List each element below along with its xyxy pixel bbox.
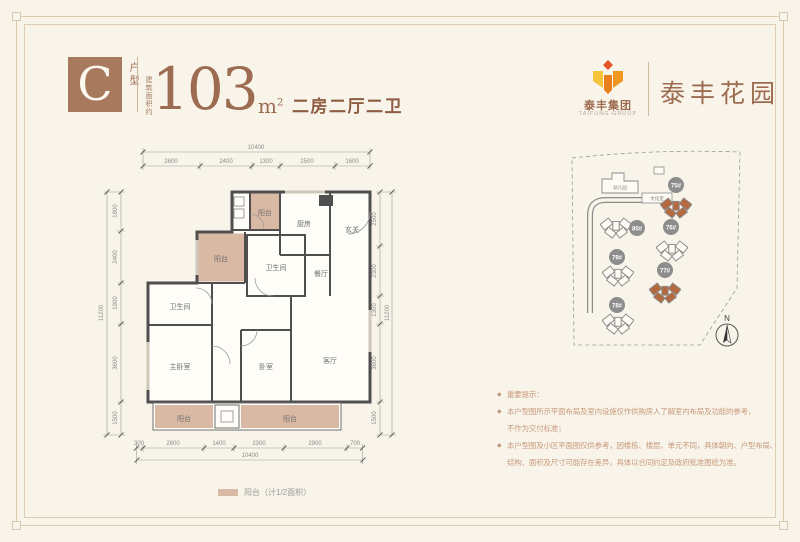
dim: 3600: [113, 356, 119, 370]
dim: 1600: [345, 159, 359, 165]
building-id: 80#: [632, 227, 643, 233]
dim: 1800: [113, 204, 119, 218]
disclaimer-text: 本户型图所示平面布局及室内设施仅作供购房人了解室内布局及功能的参考，: [507, 407, 755, 417]
disclaimer-text: 结构、面积及尺寸可能存在差异，具体以合同约定及政府批准图纸为准。: [507, 458, 741, 468]
brochure-page: C 户型 建筑面积约 103 m2 二房二厅二卫 泰丰集团 TAIFUNG GR…: [0, 0, 800, 542]
project-name: 泰丰花园: [660, 74, 780, 110]
appliance-icon: [234, 197, 244, 206]
area-unit-sup: 2: [277, 97, 283, 108]
dim: 2500: [372, 212, 378, 226]
dim: 700: [350, 441, 361, 447]
room-label: 卫生间: [170, 302, 191, 311]
room-label: 阳台: [214, 254, 228, 263]
disclaimer: ◆ 重要提示： ◆ 本户型图所示平面布局及室内设施仅作供购房人了解室内布局及功能…: [497, 390, 757, 475]
disclaimer-line: ◆ 重要提示：: [497, 390, 757, 400]
layout-description: 二房二厅二卫: [292, 92, 403, 117]
diamond-bullet-icon: ◆: [497, 407, 507, 417]
area-value: 103: [152, 58, 257, 120]
dim: 2400: [113, 250, 119, 264]
room-label: 阳台: [283, 414, 297, 423]
compass-icon: N: [716, 314, 738, 346]
dim: 2600: [164, 159, 178, 165]
appliance-icon: [234, 209, 244, 218]
building-id: 75#: [671, 184, 682, 190]
diamond-bullet-icon: ◆: [497, 390, 507, 400]
building-id: 76#: [666, 226, 677, 232]
dim: 2400: [219, 159, 233, 165]
legend-label: 阳台（计1/2面积）: [244, 487, 311, 498]
building-id: 78#: [612, 304, 623, 310]
room-label: 玄关: [345, 225, 359, 234]
legend-swatch: [218, 489, 238, 496]
dim: 3600: [372, 356, 378, 370]
room-label: 卫生间: [266, 263, 287, 272]
building-78: [602, 314, 634, 334]
building-id: 77#: [660, 269, 671, 275]
dim-top-total: 10400: [248, 145, 265, 151]
dim: 1500: [113, 411, 119, 425]
floor-plan: 阳台 厨房 玄关 阳台 卫生间 餐厅 卫生间 主卧室 卧室 客厅 阳台 阳台: [95, 140, 405, 475]
dim: 1400: [212, 441, 226, 447]
disclaimer-line: ◆ 本户型图所示平面布局及室内设施仅作供购房人了解室内布局及功能的参考，: [497, 407, 757, 417]
brand-name-en: TAIFUNG GROUP: [578, 111, 638, 117]
frame-corner-ornament: [12, 12, 21, 21]
frame-corner-ornament: [779, 12, 788, 21]
frame-corner-ornament: [12, 521, 21, 530]
dim-left-total: 11200: [99, 304, 105, 321]
dim: 2500: [300, 159, 314, 165]
building-79: [602, 266, 634, 286]
dim: 300: [134, 441, 145, 447]
balcony-legend: 阳台（计1/2面积）: [218, 487, 311, 498]
room-label: 卧室: [259, 362, 273, 371]
building-75-highlighted: [660, 198, 692, 218]
kindergarten-label: 幼儿园: [613, 184, 627, 191]
disclaimer-text: 本户型图及小区平面图仅供参考，因楼栋、楼层、单元不同，具体朝向、户型布局、: [507, 441, 777, 451]
kindergarten-building: [602, 173, 638, 193]
dim-bottom-total: 10400: [242, 453, 259, 459]
dim: 1500: [372, 411, 378, 425]
room-label: 阳台: [258, 208, 272, 217]
building-80: [600, 218, 632, 238]
frame-corner-ornament: [779, 521, 788, 530]
room-label: 餐厅: [314, 269, 328, 278]
title-divider: [137, 57, 138, 112]
hut-icon: [654, 167, 664, 174]
dim-right-total: 11200: [385, 304, 391, 321]
room-label: 客厅: [323, 356, 337, 365]
dim: 2300: [252, 441, 266, 447]
disclaimer-text: 不作为交付标准；: [507, 424, 565, 434]
building-77-highlighted: [649, 283, 681, 303]
dim: 2300: [372, 264, 378, 278]
area-unit-base: m: [258, 94, 277, 118]
disclaimer-line: ◆ 本户型图及小区平面图仅供参考，因楼栋、楼层、单元不同，具体朝向、户型布局、: [497, 441, 757, 451]
unit-type-letter: C: [77, 57, 112, 111]
site-boundary: [572, 151, 740, 345]
room-label: 主卧室: [170, 362, 191, 371]
disclaimer-line: 不作为交付标准；: [497, 424, 757, 434]
dim: 1900: [113, 296, 119, 310]
site-map: 幼儿园 文化室 75# 80# 76# 79# 77# 78# N: [558, 145, 758, 357]
diamond-bullet-icon: ◆: [497, 441, 507, 451]
shaft: [319, 195, 333, 206]
building-76: [656, 241, 688, 261]
dim: 2800: [166, 441, 180, 447]
disclaimer-text: 重要提示：: [507, 390, 544, 400]
disclaimer-line: 结构、面积及尺寸可能存在差异，具体以合同约定及政府批准图纸为准。: [497, 458, 757, 468]
unit-type-box: C: [68, 57, 122, 112]
brand-divider: [648, 62, 649, 116]
taifung-logo-icon: [588, 58, 628, 96]
room-label: 厨房: [297, 219, 311, 228]
room-label: 阳台: [177, 414, 191, 423]
dim: 1300: [259, 159, 273, 165]
area-unit: m2: [258, 94, 283, 118]
culture-room-label: 文化室: [650, 195, 664, 202]
dim: 2900: [308, 441, 322, 447]
laundry-niche: [215, 405, 239, 428]
dim: 1300: [372, 303, 378, 317]
compass-north-label: N: [724, 314, 730, 323]
building-id: 79#: [612, 256, 623, 262]
